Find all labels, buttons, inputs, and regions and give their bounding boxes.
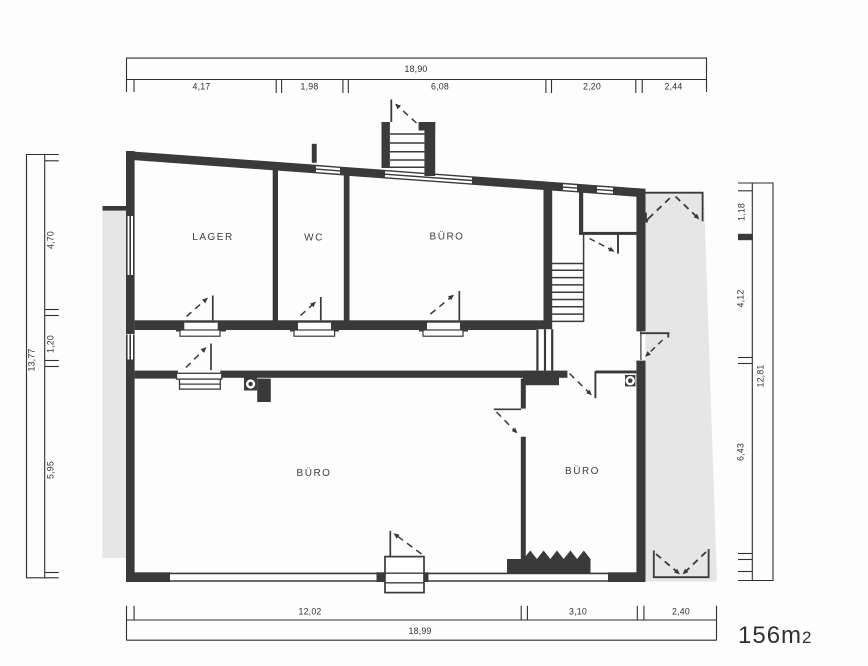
svg-text:12,81: 12,81 [756, 364, 766, 387]
svg-text:2,40: 2,40 [672, 607, 690, 617]
svg-text:4,17: 4,17 [193, 82, 211, 92]
svg-text:BÜRO: BÜRO [297, 467, 332, 479]
svg-text:13,77: 13,77 [27, 348, 37, 371]
svg-text:1,20: 1,20 [46, 335, 56, 353]
svg-text:4,12: 4,12 [736, 290, 746, 308]
svg-text:5,95: 5,95 [46, 461, 56, 479]
svg-text:LAGER: LAGER [192, 232, 233, 243]
svg-text:3,10: 3,10 [569, 607, 587, 617]
svg-text:1,98: 1,98 [301, 82, 319, 92]
svg-text:18,99: 18,99 [408, 626, 431, 636]
svg-text:156m2: 156m2 [738, 622, 813, 649]
svg-text:6,08: 6,08 [431, 82, 449, 92]
svg-text:2,44: 2,44 [665, 82, 683, 92]
svg-text:BÜRO: BÜRO [565, 465, 600, 477]
svg-text:WC: WC [304, 233, 324, 244]
svg-text:BÜRO: BÜRO [430, 231, 465, 243]
svg-text:1,18: 1,18 [737, 203, 747, 221]
svg-text:18,90: 18,90 [404, 64, 427, 74]
svg-text:6,43: 6,43 [736, 443, 746, 461]
svg-text:2,20: 2,20 [583, 82, 601, 92]
svg-text:12,02: 12,02 [298, 607, 321, 617]
svg-text:4,70: 4,70 [46, 231, 56, 249]
